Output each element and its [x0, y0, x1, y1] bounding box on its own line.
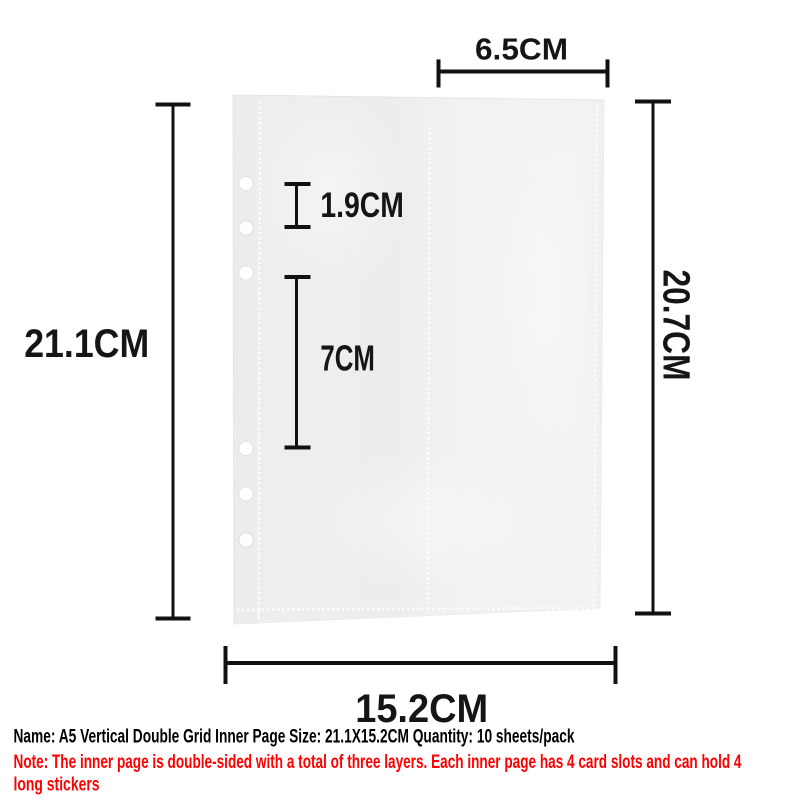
- svg-text:1.9CM: 1.9CM: [320, 186, 404, 225]
- svg-text:15.2CM: 15.2CM: [355, 687, 488, 731]
- svg-text:Name: A5 Vertical Double Grid: Name: A5 Vertical Double Grid Inner Page…: [14, 726, 575, 748]
- svg-text:21.1CM: 21.1CM: [24, 322, 149, 366]
- svg-text:long stickers: long stickers: [14, 773, 100, 795]
- svg-text:6.5CM: 6.5CM: [475, 31, 568, 66]
- svg-text:7CM: 7CM: [320, 338, 375, 379]
- svg-text:20.7CM: 20.7CM: [655, 270, 697, 381]
- svg-text:Note: The inner page is double: Note: The inner page is double-sided wit…: [14, 751, 742, 773]
